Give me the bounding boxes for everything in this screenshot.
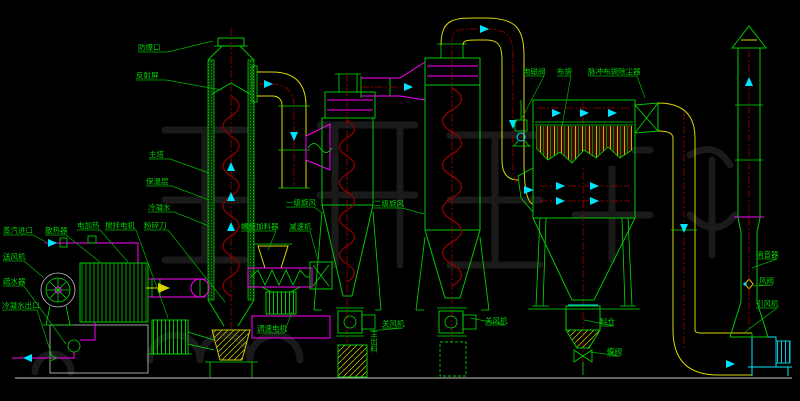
feed-blower [41,273,75,325]
cyclone2-top-box [425,58,480,85]
agitator-motor-box [152,320,188,354]
heater-base-frame [50,325,148,373]
safety-valve [88,236,96,243]
label-speed-motor: 调速电机 [257,323,287,333]
label-radiator: 散热器 [45,225,68,235]
label-airlock1: 关风机 [382,318,405,328]
label-insulation: 保温层 [146,177,169,186]
label-airlock2: 关风机 [485,315,508,325]
steam-pipe [45,243,138,263]
drying-system-diagram: 防爆口 反射屏 主塔 保温层 冷凝水 电加热 搅拌电机 粉碎刀 蒸汽进口 散热器… [0,0,800,401]
label-main-discharge: 主出料 [369,329,378,354]
label-condensate-outlet: 冷凝水出口 [2,300,40,310]
cyclone2-airlock [439,311,463,333]
label-screw-feeder: 螺旋加料器 [241,221,279,231]
label-reflector-screen: 反射屏 [136,70,159,80]
label-steam-inlet: 蒸汽进口 [3,225,33,235]
cyclone2-body [425,85,480,230]
fan-motor [776,341,790,363]
stack-and-fan [673,26,792,376]
tower-wall-right [248,60,254,300]
label-cloth-bag: 布袋 [557,66,572,76]
label-electric-heater: 电加热 [77,220,100,230]
bagfilter-hopper [533,218,635,300]
hot-air-arrow [158,283,170,293]
cyclone1-airlock-motor [362,315,375,329]
label-muffler: 消音器 [756,249,779,259]
speed-motor-box [266,292,296,314]
label-cyclone1: 一级旋风 [286,197,316,207]
radiator [80,263,148,322]
label-blower: 送风机 [3,251,26,261]
label-cyclone2: 二级旋风 [374,198,404,208]
condensate-arrow [23,354,32,362]
cyclone2-airlock-motor [463,315,476,329]
feed-hopper [258,246,288,268]
screw [251,270,306,285]
label-solenoid-valve: 电磁阀 [523,66,546,76]
cyclone1-airlock [338,311,362,333]
label-induced-draft-fan: 引风机 [756,298,779,308]
diagram-canvas: 防爆口 反射屏 主塔 保温层 冷凝水 电加热 搅拌电机 粉碎刀 蒸汽进口 散热器… [0,0,800,401]
bag-filter [512,100,697,375]
expansion-horn [306,124,330,170]
steam-flow-arrow [48,239,57,247]
label-air-damper: 风阀 [759,276,774,285]
cyclone2-drum [440,342,466,376]
tower-gearbox [212,330,250,360]
tower-wall-left [208,60,214,300]
label-crusher-blade: 粉碎刀 [144,220,167,230]
label-pulse-bag-filter: 脉冲布袋除尘器 [588,66,641,76]
butterfly-valve-l [574,350,583,362]
interstage-duct [361,62,425,100]
label-explosion-vent: 防爆口 [138,42,161,52]
label-hopper: 料仓 [600,316,615,326]
label-butterfly-valve: 蝶阀 [607,346,622,356]
stack-cap [732,26,766,48]
discharge-drum [338,345,367,377]
label-main-tower: 主塔 [149,149,164,159]
label-reducer: 减速机 [289,221,312,231]
label-condensate: 冷凝水 [148,202,171,212]
steam-trap-device [68,340,80,352]
label-agitator-motor: 搅拌电机 [105,220,135,230]
fan-housing [752,337,776,367]
label-steam-trap: 疏水器 [3,276,26,286]
